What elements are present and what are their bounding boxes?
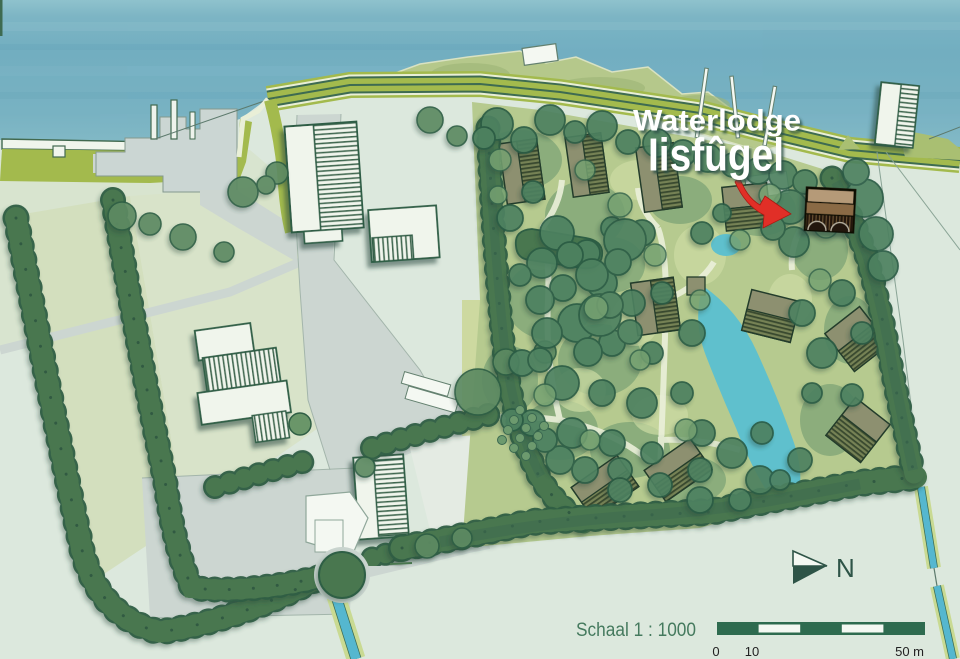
- svg-text:Iisfûgel: Iisfûgel: [648, 129, 784, 181]
- svg-text:50 m: 50 m: [895, 644, 924, 659]
- svg-text:10: 10: [745, 644, 759, 659]
- svg-text:0: 0: [712, 644, 719, 659]
- svg-text:Schaal 1 : 1000: Schaal 1 : 1000: [576, 620, 696, 641]
- svg-text:N: N: [836, 553, 855, 583]
